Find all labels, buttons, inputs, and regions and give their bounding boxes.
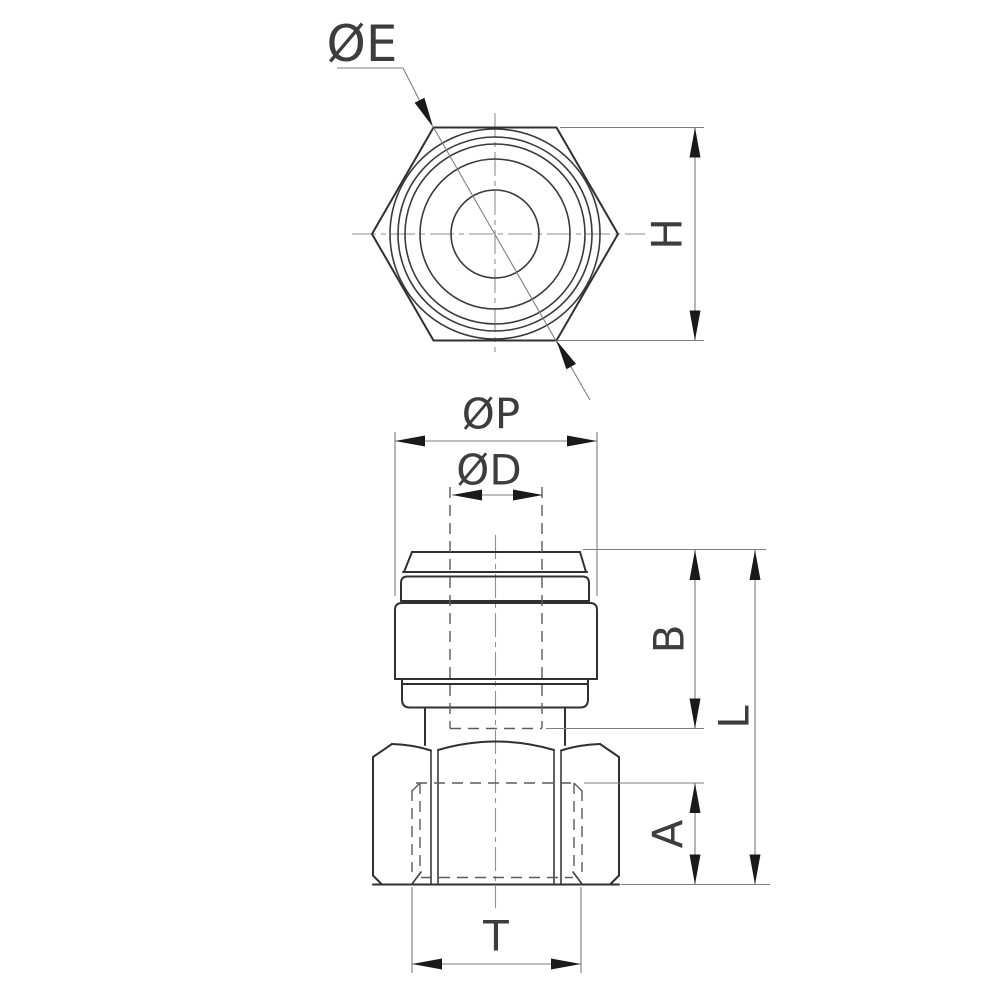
dimension-l: L [710, 550, 761, 885]
arrowhead [690, 699, 701, 729]
arrowhead [415, 98, 433, 127]
dimension-d: ØD [452, 446, 543, 501]
dim-label-p: ØP [462, 390, 520, 439]
arrowhead [690, 311, 701, 341]
arrowhead [690, 783, 701, 813]
arrowhead [567, 436, 597, 447]
arrowhead [690, 855, 701, 885]
dimension-t: T [412, 887, 581, 973]
arrowhead [395, 436, 425, 447]
top-view-centerlines [352, 113, 645, 352]
front-view: ØP ØD B L [373, 390, 770, 974]
arrowhead [690, 128, 701, 158]
dimension-e: ØE [327, 15, 576, 369]
arrowhead [750, 550, 761, 580]
arrowhead [412, 959, 442, 970]
dim-label-d: ØD [456, 446, 521, 495]
arrowhead [690, 550, 701, 580]
arrowhead [557, 341, 577, 370]
technical-drawing: ØE H [0, 0, 1000, 1000]
dim-label-a: A [644, 819, 693, 848]
top-view: ØE H [327, 15, 704, 400]
arrowhead [551, 959, 581, 970]
dim-label-b: B [645, 625, 694, 654]
arrowhead [750, 855, 761, 885]
dim-label-e: ØE [327, 15, 398, 73]
dim-label-h: H [643, 218, 692, 250]
dim-label-t: T [482, 912, 509, 961]
dimension-a: A [584, 783, 770, 885]
dim-label-l: L [710, 705, 759, 729]
